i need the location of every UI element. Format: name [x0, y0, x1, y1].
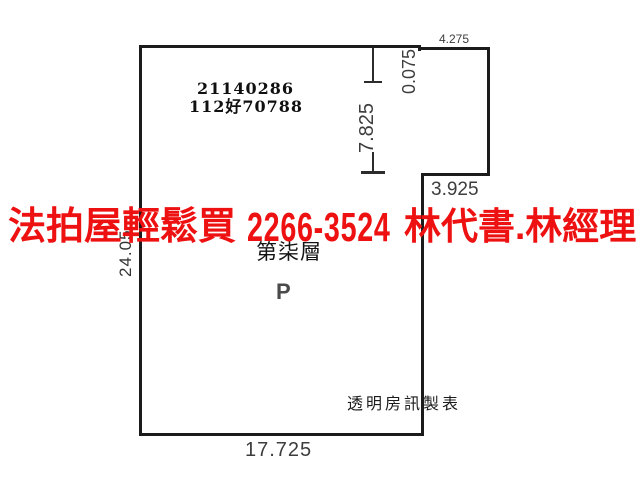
- floorplan-scan: 4.275 0.075 7.825 3.925 24.05 17.725 211…: [0, 0, 640, 480]
- wall-bottom: [139, 433, 424, 436]
- dimension-right-step-width: 3.925: [431, 180, 479, 199]
- dimension-line-lower-segment: [372, 152, 374, 173]
- ad-overlay: 法拍屋輕鬆買 2266-3524 林代書.林經理: [0, 204, 640, 252]
- parking-space-label: P: [276, 281, 291, 303]
- dimension-tick-lower: [361, 171, 385, 174]
- ad-agency-text: 法拍屋輕鬆買: [8, 204, 236, 250]
- wall-right-step: [421, 173, 490, 176]
- dimension-top-right-width: 4.275: [439, 33, 469, 45]
- ad-contact-text: 林代書.林經理: [404, 204, 636, 250]
- dimension-tick-upper: [364, 81, 382, 83]
- plan-maker-label: 透明房訊製表: [347, 396, 461, 412]
- wall-top-right: [418, 47, 490, 50]
- wall-top-left: [139, 45, 421, 48]
- case-number-line2: 112好70788: [189, 99, 303, 115]
- ad-phone-number: 2266-3524: [247, 204, 391, 250]
- dimension-line-upper-segment: [372, 48, 374, 82]
- case-number-line1: 21140286: [197, 81, 294, 97]
- dimension-bottom-width: 17.725: [245, 440, 312, 460]
- wall-right-upper: [487, 47, 490, 176]
- dimension-top-notch-depth: 0.075: [400, 49, 418, 94]
- dimension-upper-right-height: 7.825: [357, 103, 377, 153]
